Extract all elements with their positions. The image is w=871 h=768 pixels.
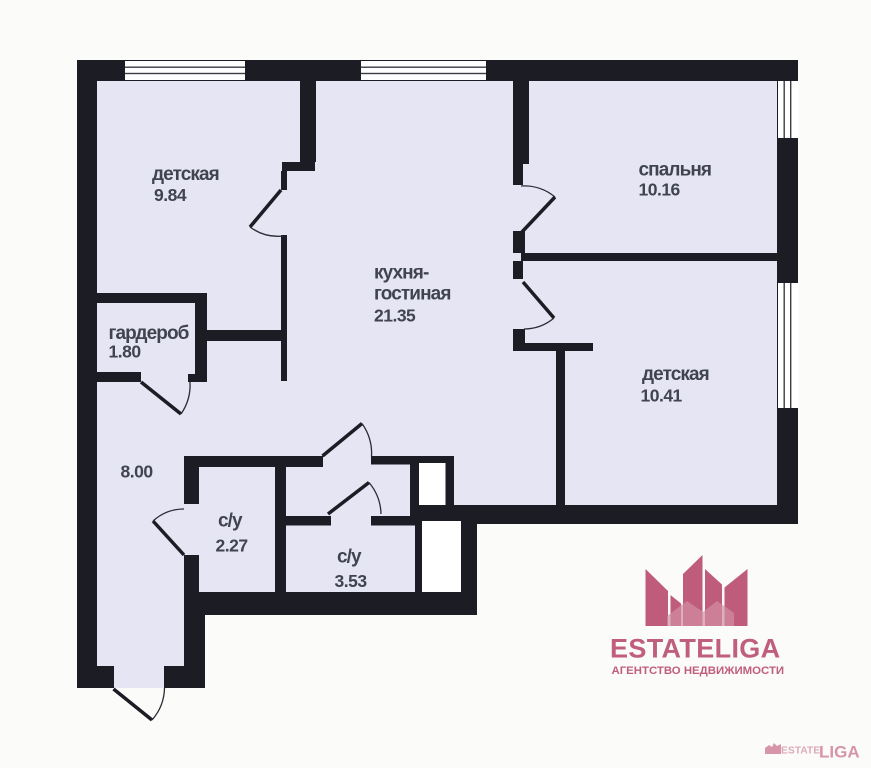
svg-text:9.84: 9.84 <box>154 185 187 205</box>
svg-text:с/у: с/у <box>218 511 243 532</box>
svg-text:детская: детская <box>152 164 219 185</box>
svg-text:детская: детская <box>642 364 709 385</box>
svg-text:кухня-: кухня- <box>374 263 429 284</box>
svg-text:21.35: 21.35 <box>374 306 416 326</box>
svg-text:спальня: спальня <box>639 160 712 181</box>
svg-text:АГЕНТСТВО НЕДВИЖИМОСТИ: АГЕНТСТВО НЕДВИЖИМОСТИ <box>612 665 785 677</box>
svg-text:10.41: 10.41 <box>641 386 683 406</box>
svg-text:10.16: 10.16 <box>639 180 681 200</box>
svg-text:ESTATE: ESTATE <box>781 746 820 757</box>
svg-text:гостиная: гостиная <box>374 284 451 305</box>
svg-text:8.00: 8.00 <box>121 462 154 482</box>
svg-text:ESTATELIGA: ESTATELIGA <box>610 634 781 664</box>
svg-text:с/у: с/у <box>337 547 362 568</box>
svg-text:1.80: 1.80 <box>109 342 142 362</box>
svg-text:2.27: 2.27 <box>216 536 248 556</box>
svg-text:LIGA: LIGA <box>819 743 860 762</box>
svg-text:3.53: 3.53 <box>335 571 368 591</box>
